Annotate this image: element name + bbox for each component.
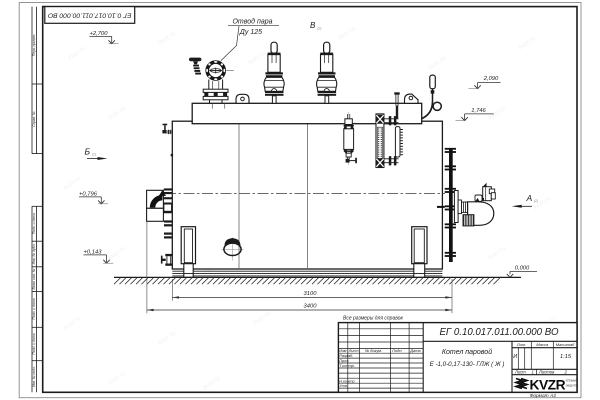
svg-text:(2): (2) [318, 27, 322, 31]
svg-text:Перв. примен.: Перв. примен. [32, 34, 36, 57]
svg-text:Подп.: Подп. [392, 348, 402, 353]
svg-text:Масса: Масса [536, 342, 549, 347]
svg-text:Справ. №: Справ. № [32, 111, 36, 127]
svg-text:Лист: Лист [514, 370, 526, 375]
svg-text:ЕГ 0.10.017.011.00.000 ВО: ЕГ 0.10.017.011.00.000 ВО [439, 327, 559, 338]
svg-text:Ду 125: Ду 125 [239, 29, 262, 36]
svg-text:Т.контр.: Т.контр. [339, 363, 355, 368]
svg-text:Листов: Листов [538, 370, 555, 375]
svg-text:А: А [526, 193, 533, 203]
svg-text:Дата: Дата [409, 348, 421, 353]
svg-text:Отвод пара: Отвод пара [232, 18, 272, 26]
svg-text:0,000: 0,000 [515, 266, 530, 272]
svg-text:+0,143: +0,143 [84, 249, 103, 255]
svg-text:Котел паровой: Котел паровой [442, 348, 492, 356]
svg-text:Б: Б [85, 147, 91, 157]
svg-text:(2): (2) [92, 153, 96, 157]
svg-text:1:15: 1:15 [560, 354, 572, 360]
svg-text:ЕГ 0.10.017.011.00.000 ВО: ЕГ 0.10.017.011.00.000 ВО [47, 11, 131, 18]
svg-text:Е -1,0-0,17-130- ГЛЖ ( Ж ): Е -1,0-0,17-130- ГЛЖ ( Ж ) [430, 361, 505, 368]
svg-text:№ докум.: № докум. [365, 348, 382, 353]
svg-text:1,746: 1,746 [471, 108, 486, 114]
svg-text:1: 1 [532, 370, 534, 375]
svg-text:+0,796: +0,796 [79, 191, 98, 197]
svg-text:Подп. и дата: Подп. и дата [32, 298, 36, 319]
svg-text:КОТЕЛЬНЫЙ: КОТЕЛЬНЫЙ [566, 379, 577, 383]
svg-text:Инв. № подл.: Инв. № подл. [32, 366, 36, 387]
svg-text:+2,700: +2,700 [90, 31, 109, 37]
svg-text:(2): (2) [534, 199, 538, 203]
svg-text:3400: 3400 [304, 303, 318, 309]
svg-text:Взам. инв. №: Взам. инв. № [32, 268, 36, 289]
svg-text:И: И [513, 354, 517, 360]
svg-text:3100: 3100 [304, 291, 318, 297]
svg-text:Лит.: Лит. [516, 342, 526, 347]
svg-text:Утв.: Утв. [339, 383, 348, 388]
svg-text:Подп. и дата: Подп. и дата [32, 333, 36, 354]
svg-text:2,090: 2,090 [483, 76, 499, 82]
svg-text:KVZR: KVZR [530, 378, 566, 393]
svg-text:Формат А3: Формат А3 [530, 393, 557, 399]
svg-text:Инв. № дубл.: Инв. № дубл. [32, 244, 36, 265]
svg-text:Масштаб: Масштаб [556, 342, 575, 347]
svg-text:В: В [310, 21, 316, 30]
svg-text:Все размеры для справок: Все размеры для справок [343, 316, 404, 322]
svg-text:ЗАВОД РЭП: ЗАВОД РЭП [566, 384, 577, 388]
svg-text:Подп. и дата: Подп. и дата [32, 213, 36, 234]
